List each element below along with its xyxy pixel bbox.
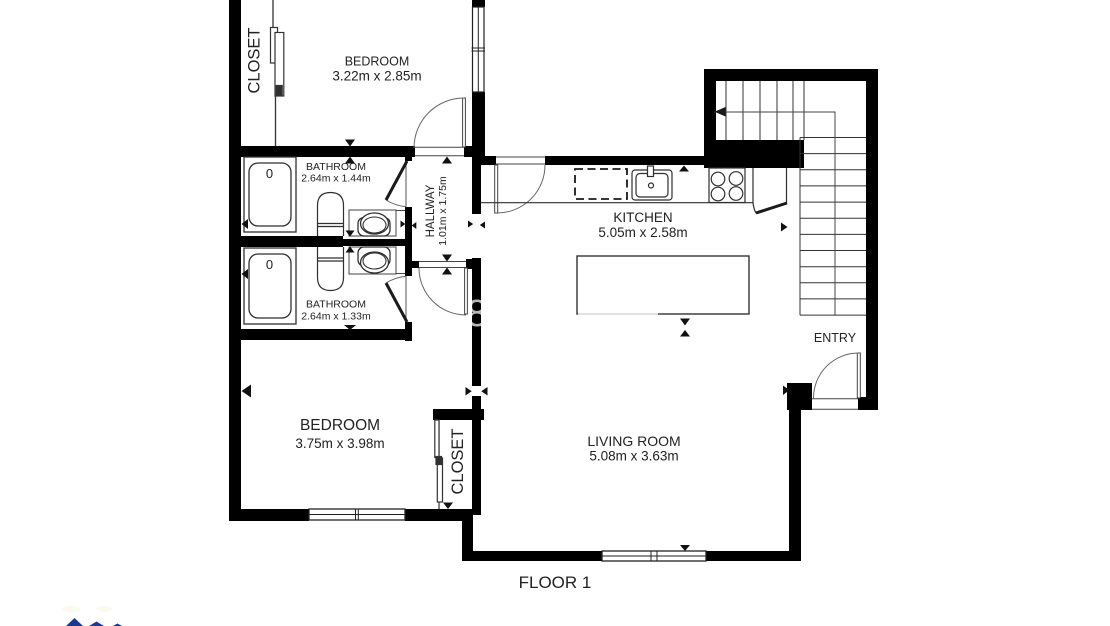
- svg-text:ENTRY: ENTRY: [814, 331, 857, 345]
- svg-text:3.75m x 3.98m: 3.75m x 3.98m: [295, 436, 384, 451]
- svg-text:LIVING ROOM: LIVING ROOM: [587, 433, 680, 449]
- svg-text:0: 0: [266, 257, 273, 272]
- svg-text:5.05m x 2.58m: 5.05m x 2.58m: [598, 225, 687, 240]
- svg-text:HALLWAY: HALLWAY: [425, 184, 437, 237]
- svg-text:BATHROOM: BATHROOM: [306, 161, 366, 173]
- svg-text:8: 8: [466, 293, 487, 335]
- svg-text:BEDROOM: BEDROOM: [300, 417, 380, 434]
- svg-text:FLOOR 1: FLOOR 1: [519, 573, 592, 592]
- svg-text:2.64m x 1.33m: 2.64m x 1.33m: [301, 311, 371, 323]
- svg-text:BEDROOM: BEDROOM: [345, 55, 410, 69]
- svg-text:0: 0: [266, 166, 273, 181]
- svg-text:CLOSET: CLOSET: [246, 27, 264, 93]
- svg-text:CLOSET: CLOSET: [449, 428, 467, 494]
- svg-text:2.64m x 1.44m: 2.64m x 1.44m: [301, 173, 371, 185]
- svg-text:BATHROOM: BATHROOM: [306, 299, 366, 311]
- svg-text:1.01m x 1.75m: 1.01m x 1.75m: [437, 176, 449, 246]
- svg-text:KITCHEN: KITCHEN: [613, 210, 672, 225]
- svg-text:5.08m x 3.63m: 5.08m x 3.63m: [589, 449, 678, 464]
- svg-text:3.22m x 2.85m: 3.22m x 2.85m: [332, 69, 421, 84]
